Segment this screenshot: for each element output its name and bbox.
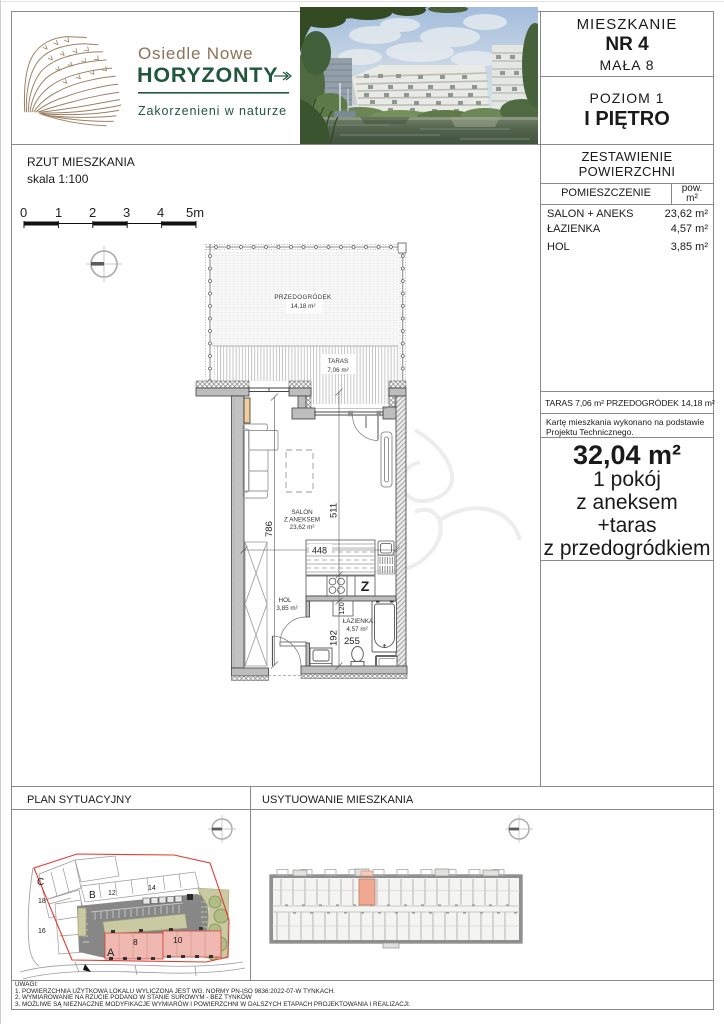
svg-text:12: 12 xyxy=(108,890,116,897)
svg-text:10: 10 xyxy=(173,935,183,945)
svg-text:2: 2 xyxy=(89,205,96,220)
svg-text:B: B xyxy=(89,890,96,901)
svg-text:ŁAZIENKA: ŁAZIENKA xyxy=(343,618,374,625)
svg-text:18: 18 xyxy=(38,898,46,905)
svg-text:Z ANEKSEM: Z ANEKSEM xyxy=(284,517,320,524)
svg-text:4: 4 xyxy=(157,205,164,220)
svg-text:786: 786 xyxy=(264,521,275,537)
svg-text:C: C xyxy=(37,877,44,888)
svg-text:448: 448 xyxy=(312,546,327,556)
svg-text:HORYZONTY: HORYZONTY xyxy=(137,63,278,87)
svg-text:3,85 m²: 3,85 m² xyxy=(276,605,297,612)
svg-text:SALON: SALON xyxy=(291,509,313,516)
svg-text:Z: Z xyxy=(361,578,370,594)
svg-text:8: 8 xyxy=(133,937,138,947)
svg-text:HOL: HOL xyxy=(279,597,292,604)
svg-text:4,57 m²: 4,57 m² xyxy=(346,626,367,633)
svg-text:255: 255 xyxy=(344,636,360,647)
svg-text:TARAS: TARAS xyxy=(328,358,349,365)
svg-text:0: 0 xyxy=(20,205,27,220)
svg-text:Osiedle Nowe: Osiedle Nowe xyxy=(138,44,253,63)
svg-text:A: A xyxy=(107,947,115,959)
svg-text:192: 192 xyxy=(329,630,340,646)
svg-text:3: 3 xyxy=(123,205,130,220)
svg-text:14: 14 xyxy=(148,885,156,892)
svg-text:1: 1 xyxy=(55,205,62,220)
svg-text:16: 16 xyxy=(38,928,46,935)
svg-text:511: 511 xyxy=(329,503,340,518)
svg-text:Zakorzenieni w naturze: Zakorzenieni w naturze xyxy=(138,104,287,118)
svg-text:120: 120 xyxy=(337,602,346,615)
svg-text:7,06 m²: 7,06 m² xyxy=(327,367,348,374)
svg-text:23,62 m²: 23,62 m² xyxy=(290,524,315,531)
svg-text:5m: 5m xyxy=(186,205,204,220)
svg-text:14,18 m²: 14,18 m² xyxy=(291,303,316,310)
svg-text:PRZEDOGRÓDEK: PRZEDOGRÓDEK xyxy=(274,292,332,301)
